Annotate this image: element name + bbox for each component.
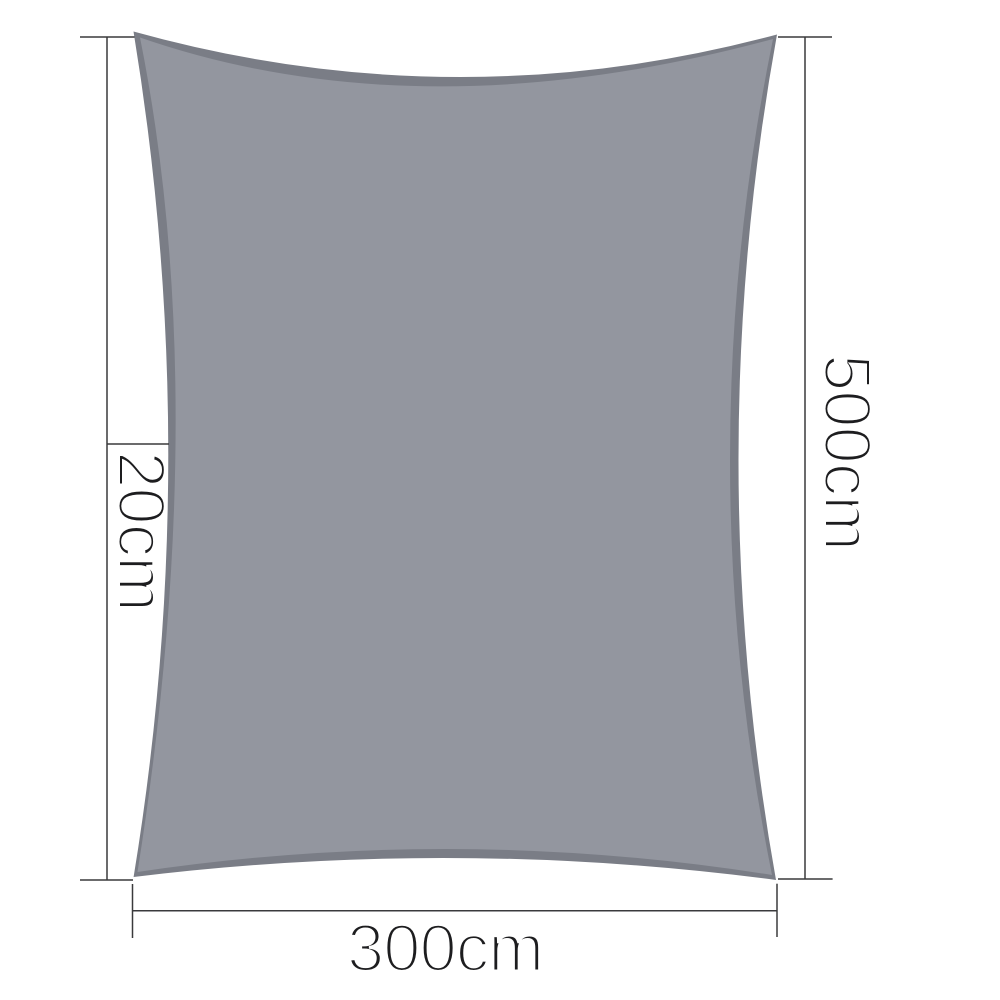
svg-text:500cm: 500cm — [810, 354, 885, 550]
svg-text:20cm: 20cm — [104, 451, 179, 611]
svg-text:300cm: 300cm — [347, 911, 543, 986]
